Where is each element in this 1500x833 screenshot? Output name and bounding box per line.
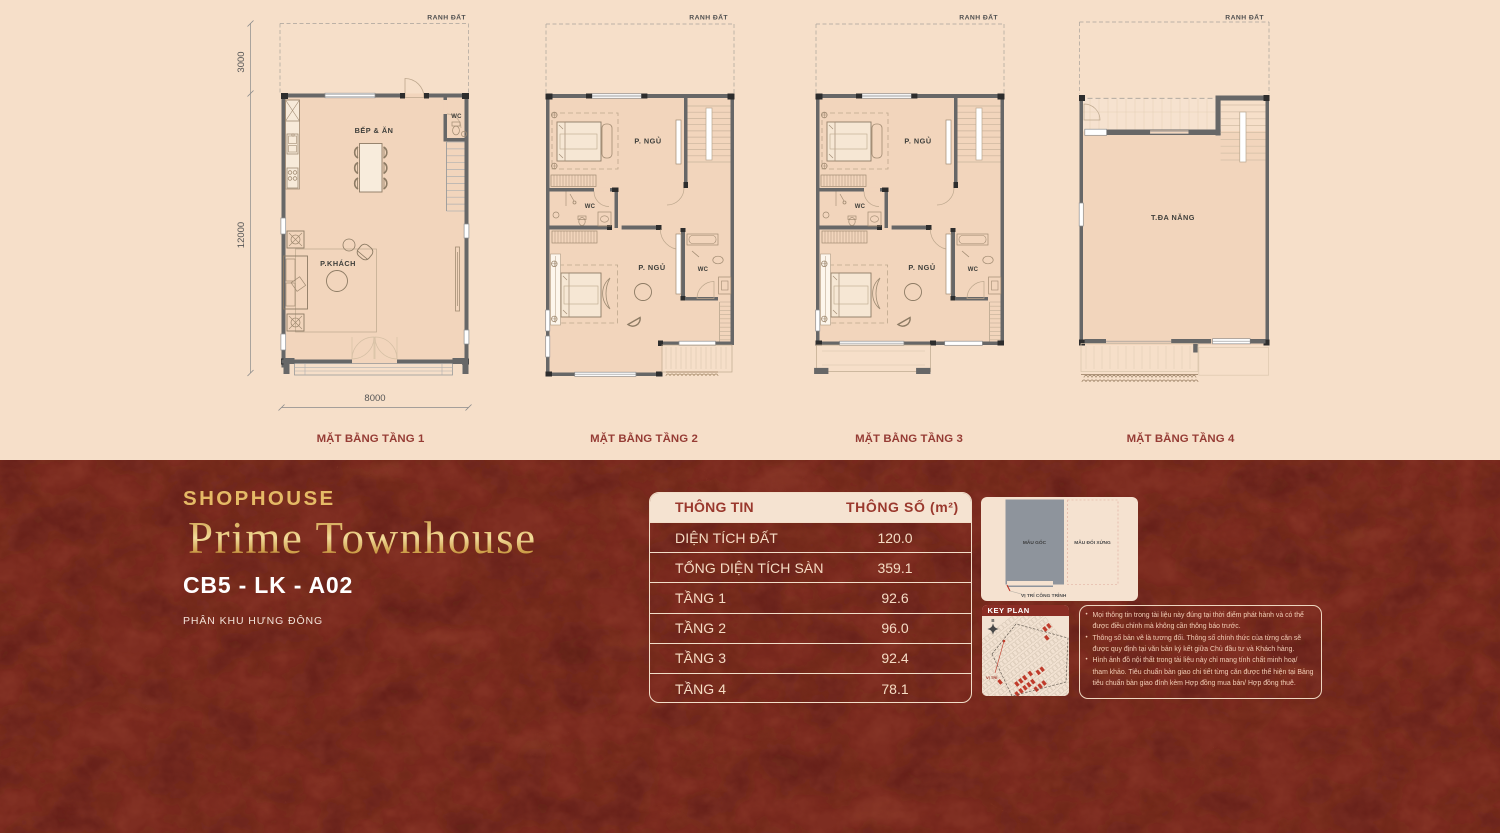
svg-text:WC: WC [451,114,462,120]
svg-text:T.ĐA NĂNG: T.ĐA NĂNG [1151,213,1195,222]
svg-text:BẾP & ĂN: BẾP & ĂN [355,125,394,135]
svg-text:MẶT BẰNG TẦNG 2: MẶT BẰNG TẦNG 2 [590,432,698,445]
svg-text:MẶT BẰNG TẦNG 4: MẶT BẰNG TẦNG 4 [1127,432,1235,445]
svg-text:B: B [991,617,994,622]
svg-text:RANH ĐẤT: RANH ĐẤT [427,12,466,22]
svg-text:VỊ TRÍ CÔNG TRÌNH: VỊ TRÍ CÔNG TRÌNH [1021,591,1067,599]
svg-text:MẪU GỐC: MẪU GỐC [1023,539,1047,546]
svg-text:3000: 3000 [236,51,247,72]
svg-text:VỊ TRÍ: VỊ TRÍ [986,675,998,680]
svg-text:MẶT BẰNG TẦNG 3: MẶT BẰNG TẦNG 3 [855,432,963,445]
svg-text:RANH ĐẤT: RANH ĐẤT [689,12,728,22]
svg-text:MẶT BẰNG TẦNG 1: MẶT BẰNG TẦNG 1 [317,432,425,445]
svg-text:12000: 12000 [236,222,247,248]
svg-text:RANH ĐẤT: RANH ĐẤT [959,12,998,22]
svg-text:MẪU ĐỐI XỨNG: MẪU ĐỐI XỨNG [1074,539,1111,546]
svg-text:8000: 8000 [364,393,385,404]
svg-text:RANH ĐẤT: RANH ĐẤT [1225,12,1264,22]
svg-text:P.KHÁCH: P.KHÁCH [320,259,356,268]
